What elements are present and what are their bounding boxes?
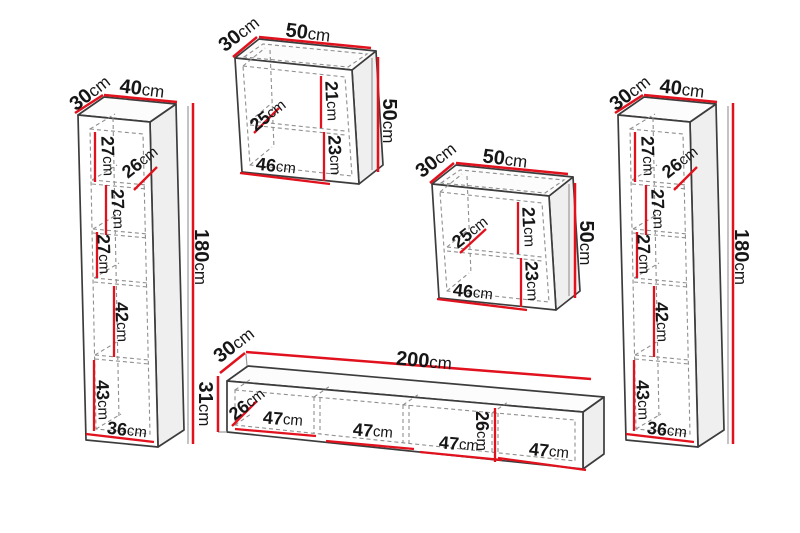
shelf2-label: 27cm [647, 189, 668, 230]
upper-section-label: 21cm [518, 207, 539, 248]
comp2-label: 47cm [352, 419, 394, 442]
comp1-label: 47cm [262, 407, 304, 430]
shelf5-label: 43cm [632, 380, 653, 421]
height-label: 180cm [730, 229, 752, 285]
lower-section-label: 23cm [521, 261, 542, 302]
shelf1-label: 27cm [97, 136, 118, 177]
height-label: 31cm [194, 382, 216, 427]
height-label: 180cm [190, 229, 212, 285]
upper-section-label: 21cm [321, 81, 342, 122]
lower-section-label: 23cm [324, 135, 345, 176]
shelf3-label: 27cm [633, 234, 654, 275]
height-label: 50cm [378, 99, 400, 144]
shelf1-label: 27cm [637, 136, 658, 177]
shelf5-label: 43cm [92, 380, 113, 421]
diagram-canvas: 30cm 40cm 180cm 27cm 26cm 27cm 27cm 42cm… [0, 0, 800, 533]
shelf3-label: 27cm [93, 234, 114, 275]
height-label: 50cm [575, 221, 597, 266]
furniture-dimension-diagram: 30cm 40cm 180cm 27cm 26cm 27cm 27cm 42cm… [0, 0, 800, 533]
shelf4-label: 42cm [111, 302, 132, 343]
shelf2-label: 27cm [107, 189, 128, 230]
inner-height-label: 26cm [472, 411, 492, 451]
shelf4-label: 42cm [651, 302, 672, 343]
